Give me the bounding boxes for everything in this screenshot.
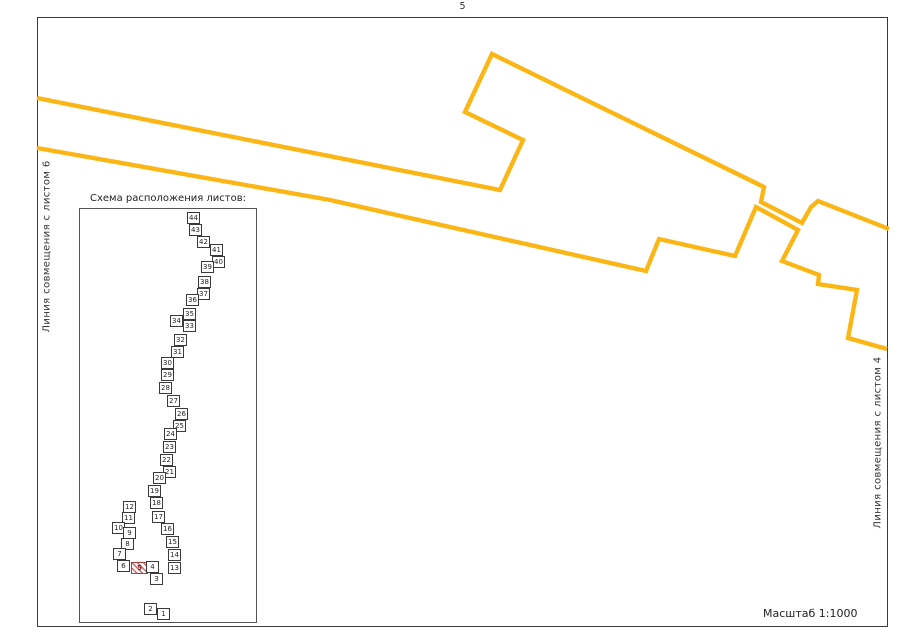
sheet-box: 29 xyxy=(161,369,174,381)
sheet-box: 30 xyxy=(161,357,174,369)
sheet-box: 4 xyxy=(146,561,159,573)
sheet-box: 22 xyxy=(160,454,173,466)
sheet-box: 44 xyxy=(187,212,200,224)
sheet-box: 43 xyxy=(189,224,202,236)
sheet-box: 33 xyxy=(183,320,196,332)
sheet-box: 20 xyxy=(153,472,166,484)
sheet-box: 38 xyxy=(198,276,211,288)
sheet-box: 26 xyxy=(175,408,188,420)
sheet-box: 7 xyxy=(113,548,126,560)
sheet-box: 42 xyxy=(197,236,210,248)
sheet-box: 27 xyxy=(167,395,180,407)
sheet-box: 17 xyxy=(152,511,165,523)
sheet-box: 18 xyxy=(150,497,163,509)
sheet-box: 16 xyxy=(161,523,174,535)
sheet-box: 14 xyxy=(168,549,181,561)
sheet-box: 23 xyxy=(163,441,176,453)
sheet-box: 39 xyxy=(201,261,214,273)
sheet-box: 15 xyxy=(166,536,179,548)
scale-label: Масштаб 1:1000 xyxy=(763,607,857,620)
sheet-box: 19 xyxy=(148,485,161,497)
sheet-box: 3 xyxy=(150,573,163,585)
sheet-box: 13 xyxy=(168,562,181,574)
sheet-box: 41 xyxy=(210,244,223,256)
sheet-box: 2 xyxy=(144,603,157,615)
sheet-box: 6 xyxy=(117,560,130,572)
sheet-box: 35 xyxy=(183,308,196,320)
sheet-box: 34 xyxy=(170,315,183,327)
sheet-box: 32 xyxy=(174,334,187,346)
sheet-box: 1 xyxy=(157,608,170,620)
sheet-box: 36 xyxy=(186,294,199,306)
scheme-sheets-layer: 4443424140393837363534333231302928272625… xyxy=(0,0,905,640)
sheet-box: 24 xyxy=(164,428,177,440)
sheet-box: 28 xyxy=(159,382,172,394)
drawing-sheet: 5 Линия совмещения с листом 6 Линия совм… xyxy=(0,0,905,640)
